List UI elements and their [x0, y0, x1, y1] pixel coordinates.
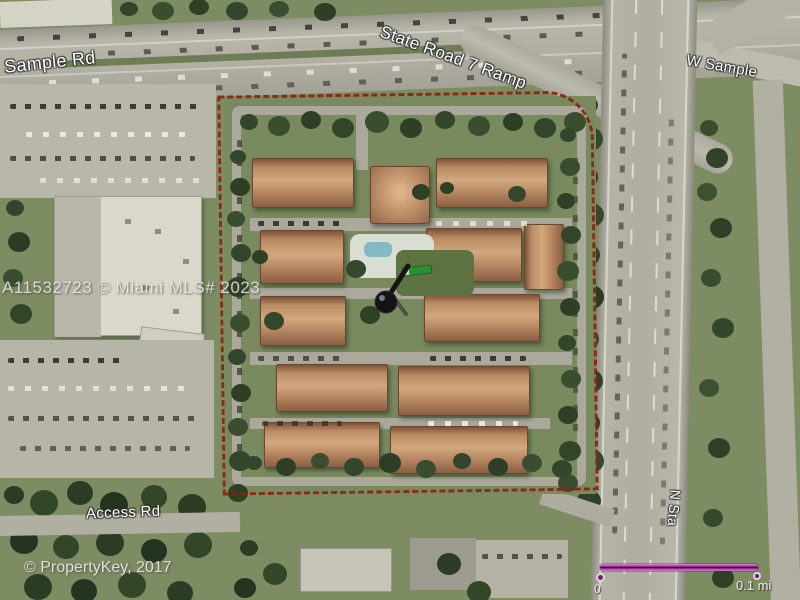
building-wing [55, 197, 101, 337]
car-row [20, 446, 190, 451]
aerial-map[interactable]: Sample Rd State Road 7 Ramp W Sample Acc… [0, 0, 800, 600]
car-row [660, 114, 674, 544]
rooftop-patch [0, 0, 112, 28]
small-building [410, 538, 476, 590]
parking-lot [476, 540, 568, 598]
car-row [482, 554, 562, 559]
tree-cluster [6, 200, 24, 216]
property-boundary [217, 90, 599, 495]
tree-cluster [4, 486, 24, 504]
commercial-building [54, 196, 202, 336]
scale-bar-left-cap [596, 573, 605, 582]
car-row [10, 104, 200, 109]
tree-cluster [240, 540, 258, 556]
scale-bar-line [600, 564, 758, 571]
scale-bar: 0 0.1 mi [590, 552, 800, 598]
scale-end-label: 0.1 mi [736, 578, 771, 593]
car-row [40, 178, 200, 183]
small-building [300, 548, 392, 592]
scale-start-label: 0 [594, 582, 601, 596]
parking-lot [0, 340, 214, 478]
road-label-access-rd: Access Rd [86, 503, 161, 523]
tree-cluster [120, 2, 138, 16]
roof-vents [125, 219, 131, 224]
car-row [8, 386, 188, 391]
tree-cluster [700, 120, 718, 136]
frontage-road [753, 80, 800, 600]
car-row [8, 358, 128, 363]
car-row [10, 156, 195, 161]
listing-watermark: A11532723 © Miami MLS# 2023 [2, 278, 260, 298]
copyright-watermark: © PropertyKey, 2017 [24, 559, 172, 577]
road-label-n-state-road: N Sta [665, 489, 684, 527]
parking-lot [0, 84, 216, 198]
car-row [26, 132, 196, 137]
car-row [8, 416, 198, 421]
